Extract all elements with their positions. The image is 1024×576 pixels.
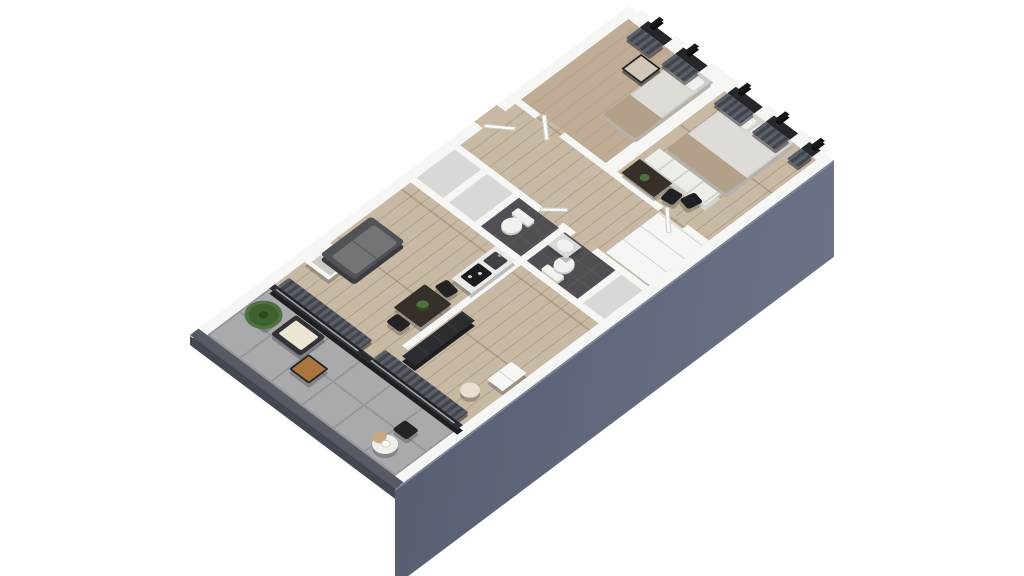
floor-plan-scene <box>0 0 1024 576</box>
bathroom-door-leaf <box>540 208 568 212</box>
